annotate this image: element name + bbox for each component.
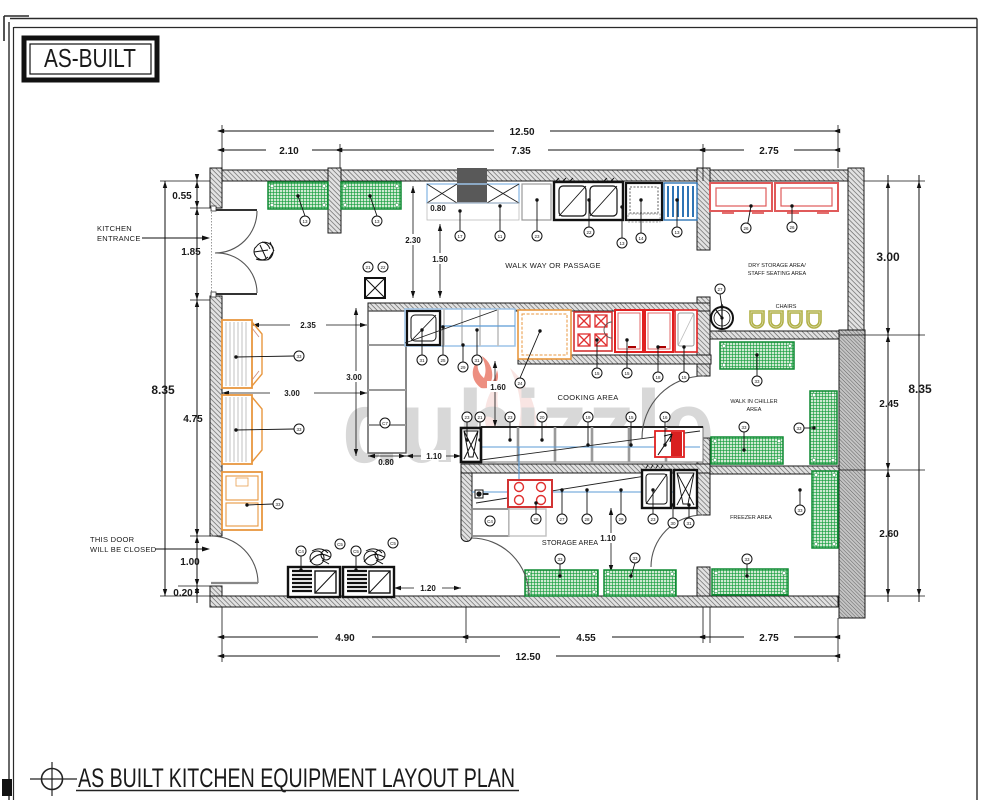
svg-text:14: 14 (638, 236, 644, 241)
svg-text:13: 13 (619, 241, 625, 246)
svg-text:WALK IN CHILLER: WALK IN CHILLER (730, 399, 777, 405)
svg-text:27: 27 (559, 517, 565, 522)
svg-text:0.20: 0.20 (173, 588, 193, 599)
svg-text:2.30: 2.30 (405, 236, 421, 245)
svg-text:4.90: 4.90 (335, 633, 355, 644)
svg-text:11: 11 (498, 234, 503, 239)
svg-text:18: 18 (655, 375, 661, 380)
svg-text:C4: C4 (487, 519, 493, 524)
svg-text:AREA: AREA (747, 407, 762, 413)
svg-text:STAFF SEATING AREA: STAFF SEATING AREA (748, 271, 807, 277)
svg-text:WILL BE CLOSED: WILL BE CLOSED (90, 545, 157, 554)
svg-text:1.10: 1.10 (426, 452, 442, 461)
svg-text:C5: C5 (337, 542, 343, 547)
svg-text:33: 33 (754, 379, 760, 384)
svg-text:2.45: 2.45 (879, 399, 899, 410)
svg-text:8.35: 8.35 (908, 382, 932, 396)
svg-text:16: 16 (662, 415, 668, 420)
svg-text:CHAIRS: CHAIRS (776, 304, 797, 310)
svg-text:23: 23 (507, 415, 513, 420)
svg-text:DRY STORAGE AREA/: DRY STORAGE AREA/ (748, 263, 806, 269)
svg-text:31: 31 (419, 358, 425, 363)
svg-text:4.75: 4.75 (183, 414, 203, 425)
svg-text:0.55: 0.55 (172, 191, 192, 202)
svg-text:1.00: 1.00 (180, 557, 200, 568)
svg-text:21: 21 (477, 415, 483, 420)
svg-text:28: 28 (533, 517, 539, 522)
svg-text:15: 15 (624, 371, 630, 376)
svg-text:27: 27 (717, 287, 723, 292)
svg-text:1.60: 1.60 (490, 383, 506, 392)
svg-text:33: 33 (796, 426, 802, 431)
svg-text:33: 33 (744, 557, 750, 562)
svg-text:0.80: 0.80 (378, 458, 394, 467)
svg-text:8.35: 8.35 (151, 383, 175, 397)
svg-text:21: 21 (365, 265, 371, 270)
svg-text:3.00: 3.00 (284, 389, 300, 398)
svg-text:4.55: 4.55 (576, 633, 596, 644)
svg-text:AS-BUILT: AS-BUILT (44, 43, 136, 73)
svg-text:2.75: 2.75 (759, 633, 779, 644)
svg-text:15: 15 (681, 375, 687, 380)
svg-text:13: 13 (302, 219, 308, 224)
svg-text:STORAGE AREA: STORAGE AREA (542, 538, 598, 547)
svg-text:13: 13 (674, 230, 680, 235)
svg-text:26: 26 (743, 226, 749, 231)
svg-text:ENTRANCE: ENTRANCE (97, 234, 141, 243)
svg-text:33: 33 (275, 502, 281, 507)
svg-text:26: 26 (789, 225, 795, 230)
svg-text:3.00: 3.00 (876, 250, 900, 264)
svg-text:31: 31 (474, 358, 480, 363)
svg-text:22: 22 (380, 265, 386, 270)
svg-text:12.50: 12.50 (515, 652, 540, 663)
svg-text:2.75: 2.75 (759, 146, 779, 157)
svg-text:33: 33 (296, 427, 302, 432)
svg-text:33: 33 (296, 354, 302, 359)
svg-text:31: 31 (686, 521, 692, 526)
svg-text:C5: C5 (390, 541, 396, 546)
svg-text:AS BUILT KITCHEN EQUIPMENT LAY: AS BUILT KITCHEN EQUIPMENT LAYOUT PLAN (78, 763, 515, 793)
svg-text:28: 28 (584, 517, 590, 522)
svg-text:19: 19 (585, 415, 591, 420)
svg-text:12.50: 12.50 (509, 127, 534, 138)
svg-text:KITCHEN: KITCHEN (97, 224, 132, 233)
svg-text:C4: C4 (298, 549, 304, 554)
svg-text:2.35: 2.35 (300, 321, 316, 330)
svg-text:29: 29 (618, 517, 624, 522)
svg-text:1.85: 1.85 (181, 247, 201, 258)
svg-text:THIS DOOR: THIS DOOR (90, 535, 135, 544)
svg-text:33: 33 (741, 425, 747, 430)
svg-text:C7: C7 (382, 421, 388, 426)
svg-text:33: 33 (797, 508, 803, 513)
svg-text:COOKING AREA: COOKING AREA (557, 393, 618, 402)
svg-text:1.20: 1.20 (420, 584, 436, 593)
svg-text:2.10: 2.10 (279, 146, 299, 157)
svg-text:0.80: 0.80 (430, 204, 446, 213)
svg-text:23: 23 (534, 234, 540, 239)
svg-text:30: 30 (670, 521, 676, 526)
svg-text:23: 23 (650, 517, 656, 522)
svg-text:FREEZER AREA: FREEZER AREA (730, 515, 772, 521)
svg-text:33: 33 (557, 557, 563, 562)
svg-text:WALK WAY OR PASSAGE: WALK WAY OR PASSAGE (505, 261, 601, 270)
svg-text:1.10: 1.10 (600, 534, 616, 543)
svg-text:7.35: 7.35 (511, 146, 531, 157)
svg-text:3.00: 3.00 (346, 373, 362, 382)
svg-text:1.50: 1.50 (432, 255, 448, 264)
svg-text:22: 22 (586, 230, 592, 235)
svg-text:29: 29 (460, 365, 466, 370)
svg-text:17: 17 (457, 234, 463, 239)
svg-text:23: 23 (464, 415, 470, 420)
svg-text:25: 25 (440, 358, 446, 363)
svg-text:C5: C5 (353, 549, 359, 554)
svg-text:15: 15 (628, 415, 634, 420)
svg-text:15: 15 (594, 371, 600, 376)
svg-text:24: 24 (517, 381, 523, 386)
svg-text:20: 20 (539, 415, 545, 420)
svg-text:2.60: 2.60 (879, 529, 899, 540)
svg-text:13: 13 (374, 219, 380, 224)
svg-text:33: 33 (632, 556, 638, 561)
